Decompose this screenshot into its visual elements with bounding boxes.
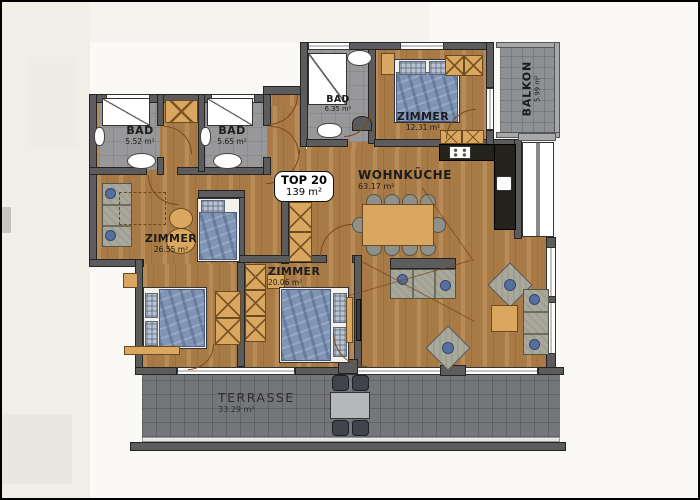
washbasin bbox=[347, 50, 372, 66]
room-area: 6.35 m² bbox=[310, 105, 366, 113]
sofa-cushion-line bbox=[434, 270, 436, 298]
wall bbox=[157, 157, 164, 175]
floor-plan: BAD 5.52 m² BAD 5.65 m² BAD 6.35 m² ZIMM… bbox=[0, 0, 700, 500]
room-name: ZIMMER bbox=[136, 232, 206, 245]
wall bbox=[89, 94, 97, 267]
terrace-chair bbox=[332, 420, 349, 436]
balcony-wall bbox=[496, 42, 560, 48]
wall bbox=[300, 42, 308, 147]
room-area: 20.06 m² bbox=[268, 278, 338, 287]
wall bbox=[306, 139, 348, 147]
unit-name: TOP 20 bbox=[280, 174, 328, 187]
throw-pillow bbox=[442, 342, 454, 354]
wall bbox=[538, 367, 564, 375]
sofa-cushion-line bbox=[412, 270, 414, 298]
bench bbox=[124, 346, 180, 355]
terrace-wall bbox=[130, 442, 566, 451]
unit-area: 139 m² bbox=[280, 187, 328, 199]
window bbox=[486, 88, 494, 130]
room-label-terrasse: TERRASSE 33.29 m² bbox=[218, 390, 318, 415]
room-name: BALKON bbox=[520, 54, 533, 124]
room-name: TERRASSE bbox=[218, 390, 318, 405]
throw-pillow bbox=[105, 188, 116, 199]
bed-pillow bbox=[399, 61, 426, 75]
room-name: ZIMMER bbox=[268, 265, 338, 278]
wardrobe bbox=[289, 232, 312, 262]
room-area: 63.17 m² bbox=[358, 182, 458, 192]
room-label-zimmer1: ZIMMER 12.31 m² bbox=[390, 110, 456, 132]
room-area: 5.52 m² bbox=[110, 137, 170, 146]
room-label-bad2: BAD 5.65 m² bbox=[202, 124, 262, 146]
room-area: 12.31 m² bbox=[390, 123, 456, 132]
room-name: WOHNKÜCHE bbox=[358, 168, 458, 182]
bed-pillow bbox=[145, 321, 158, 346]
shower bbox=[207, 98, 253, 126]
window bbox=[308, 42, 350, 50]
coffee-table bbox=[491, 305, 518, 332]
background-artifact-block bbox=[2, 414, 72, 484]
wall bbox=[486, 42, 494, 88]
wall bbox=[135, 367, 177, 375]
stove bbox=[449, 146, 471, 159]
exterior-band bbox=[518, 133, 556, 141]
bed-duvet bbox=[281, 289, 331, 361]
room-label-balkon: BALKON 5.99 m² bbox=[520, 54, 541, 124]
room-label-zimmer2: ZIMMER 26.55 m² bbox=[136, 232, 206, 254]
bed-pillow bbox=[145, 293, 158, 318]
bed-pillow bbox=[333, 293, 347, 323]
room-name: BAD bbox=[310, 94, 366, 105]
background-artifact-top bbox=[90, 2, 430, 42]
terrace-chair bbox=[332, 375, 349, 391]
wardrobe bbox=[245, 316, 266, 342]
terrace-chair bbox=[352, 420, 369, 436]
room-label-wohnkueche: WOHNKÜCHE 63.17 m² bbox=[358, 168, 458, 192]
bed-duvet bbox=[159, 289, 205, 347]
room-area: 33.29 m² bbox=[218, 405, 318, 415]
washbasin bbox=[127, 153, 156, 169]
wall bbox=[157, 94, 164, 126]
room-area: 5.99 m² bbox=[534, 54, 542, 124]
room-name: BAD bbox=[202, 124, 262, 137]
window-corner-glazing bbox=[522, 142, 554, 237]
dining-table bbox=[362, 204, 434, 246]
throw-pillow bbox=[529, 339, 540, 350]
room-area: 26.55 m² bbox=[136, 245, 206, 254]
wardrobe bbox=[445, 55, 464, 76]
background-artifact-faint bbox=[30, 57, 78, 149]
radiator bbox=[94, 127, 105, 146]
background-artifact-mark bbox=[2, 207, 11, 233]
room-label-zimmer3: ZIMMER 20.06 m² bbox=[268, 265, 338, 287]
wall bbox=[237, 255, 327, 263]
wardrobe bbox=[165, 100, 198, 123]
wall bbox=[198, 190, 245, 198]
wardrobe bbox=[215, 291, 241, 318]
shower bbox=[102, 98, 150, 126]
pouf bbox=[169, 208, 193, 229]
wall bbox=[374, 139, 444, 147]
terrace-chair bbox=[352, 375, 369, 391]
room-label-bad3: BAD 6.35 m² bbox=[310, 94, 366, 114]
nightstand bbox=[381, 53, 395, 75]
terrace-table bbox=[330, 392, 370, 419]
wall bbox=[281, 197, 289, 264]
room-name: ZIMMER bbox=[390, 110, 456, 123]
wardrobe bbox=[464, 55, 483, 76]
sofa-cushion-line bbox=[524, 311, 548, 313]
window bbox=[400, 42, 444, 50]
throw-pillow bbox=[504, 279, 516, 291]
wardrobe bbox=[215, 318, 241, 345]
room-area: 5.65 m² bbox=[202, 137, 262, 146]
throw-pillow bbox=[105, 230, 116, 241]
wardrobe bbox=[245, 290, 266, 316]
cabinet bbox=[123, 273, 138, 288]
sofa-cushion-line bbox=[524, 333, 548, 335]
room-label-bad1: BAD 5.52 m² bbox=[110, 124, 170, 146]
wardrobe bbox=[245, 264, 266, 290]
wall bbox=[295, 367, 343, 375]
room-name: BAD bbox=[110, 124, 170, 137]
unit-label: TOP 20 139 m² bbox=[274, 171, 334, 202]
kitchen-sink bbox=[496, 176, 512, 191]
wardrobe bbox=[289, 202, 312, 232]
toilet bbox=[317, 123, 342, 138]
bed-pillow bbox=[201, 200, 225, 213]
balcony-wall bbox=[554, 42, 560, 138]
throw-pillow bbox=[529, 294, 540, 305]
washbasin bbox=[213, 153, 242, 169]
sofa-cushion-line bbox=[103, 225, 131, 227]
throw-pillow bbox=[440, 280, 451, 291]
